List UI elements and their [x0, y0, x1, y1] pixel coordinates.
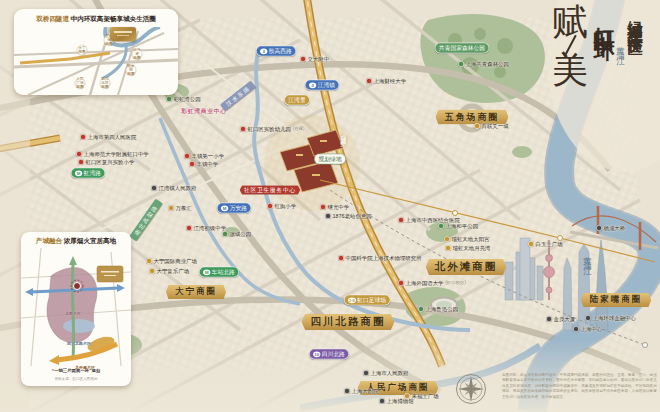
traffic-inset-title-prefix: 双桥四隧道 — [36, 15, 69, 22]
planning-inset-diagram — [21, 248, 131, 366]
disclaimer-text: 免责声明：本宣传资料为要约邀请，不构成要约或承诺。本图所示区位、交通、教育、医疗… — [502, 372, 657, 400]
planning-caption: “一轴三片两翼一环”规划 — [46, 368, 107, 374]
location-vertical: 虹口中环 — [590, 10, 618, 30]
district-bubble: 陆家嘴 商圈 — [126, 65, 136, 75]
title-block: 绿城理想生活住区 虹口中环 赋 美 — [540, 0, 660, 170]
promo-map-poster: 五角场商圈北外滩商圈陆家嘴商圈四川北路商圈人民广场商圈大宁商圈3殷高西路3江湾镇… — [0, 0, 660, 412]
project-card-badge — [110, 27, 136, 41]
brand-char-bottom: 美 — [552, 52, 588, 88]
traffic-inset-title: 双桥四隧道中内环双高架畅享城央生活圈 — [29, 14, 163, 23]
planning-inset-title-rest: 浓厚烟火宜居高地 — [64, 237, 116, 244]
planning-inset-title: 产城融合浓厚烟火宜居高地 — [31, 236, 121, 245]
plan-area-label: 四川北路片区 — [67, 341, 91, 347]
district-bubble: 大宁 商圈 — [77, 45, 87, 55]
hongkou-stadium — [431, 298, 457, 313]
planning-inset-title-prefix: 产城融合 — [36, 237, 62, 244]
district-bubble: 北外滩 商圈 — [132, 49, 142, 59]
traffic-inset-title-rest: 中内环双高架畅享城央生活圈 — [71, 15, 156, 22]
district-bubble: 四川北路 商圈 — [100, 78, 110, 88]
brand-char-top: 赋 — [552, 4, 588, 40]
tagline-vertical: 绿城理想生活住区 — [625, 8, 644, 32]
compass-rose — [457, 375, 486, 404]
planning-inset-card: 产城融合浓厚烟火宜居高地 北部片区四川北路片区北外滩片区 “一轴三片两翼一环”规… — [21, 232, 131, 386]
traffic-inset-diagram — [14, 27, 178, 95]
district-bubble: 人民广场 商圈 — [75, 78, 85, 88]
planning-source: 资料来源：虹口区人民政府 — [51, 376, 101, 381]
plan-area-label: 北部片区 — [65, 311, 81, 317]
traffic-inset-card: 双桥四隧道中内环双高架畅享城央生活圈 大宁 商圈五角场 商圈北外滩 商圈陆家嘴 … — [14, 9, 178, 95]
brand-logotype: 赋 美 — [552, 4, 588, 88]
